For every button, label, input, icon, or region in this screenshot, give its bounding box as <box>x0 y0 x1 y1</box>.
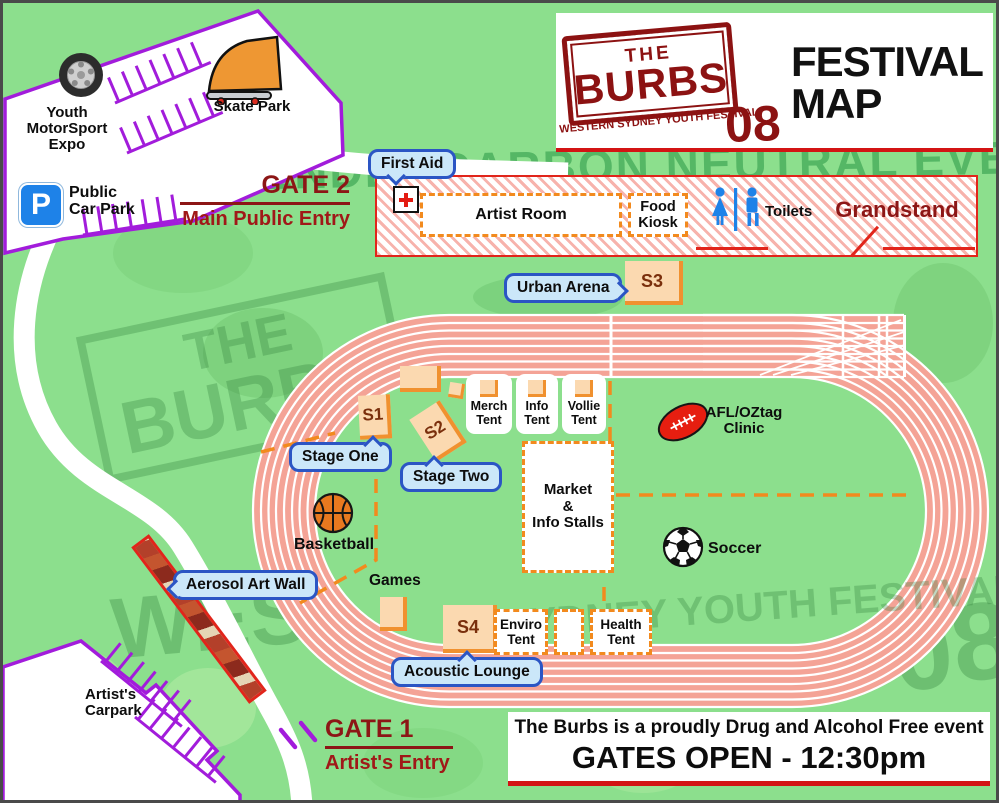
gate2-subtitle: Main Public Entry <box>180 208 350 231</box>
vollie-tent-label: Vollie Tent <box>562 400 606 427</box>
market-line1: Market <box>544 482 592 499</box>
expo-label: Youth MotorSport Expo <box>11 105 123 154</box>
artist-room-label: Artist Room <box>475 206 567 224</box>
stage-s3-label: S3 <box>641 271 663 292</box>
toilets-label: Toilets <box>765 204 812 220</box>
first-aid-cross-icon <box>398 192 414 208</box>
basketball-icon <box>312 492 354 534</box>
stage-two-label: Stage Two <box>413 468 489 485</box>
first-aid-callout: First Aid <box>368 149 456 179</box>
page-title-line2: MAP <box>791 83 983 125</box>
stage-s1-box: S1 <box>358 394 392 440</box>
food-kiosk-box: Food Kiosk <box>628 193 688 237</box>
market-line3: Info Stalls <box>532 515 604 532</box>
gate2-rule <box>180 202 350 205</box>
market-line2: & <box>563 499 574 516</box>
festival-map: A FRIENDLY CARBON NEUTRAL EVENT THE BURB… <box>0 0 999 803</box>
infield-structure-box <box>400 366 441 392</box>
gate2-title: GATE 2 <box>180 171 350 200</box>
footer-panel: The Burbs is a proudly Drug and Alcohol … <box>508 712 990 786</box>
games-label: Games <box>369 573 421 590</box>
gate1-title: GATE 1 <box>325 715 453 744</box>
tire-icon <box>57 51 105 99</box>
enviro-tent-label: Enviro Tent <box>497 617 545 647</box>
gate1-subtitle: Artist's Entry <box>325 752 453 775</box>
parking-sign: P <box>19 183 63 227</box>
info-tent-label: Info Tent <box>516 400 558 427</box>
health-tent-label: Health Tent <box>593 617 649 647</box>
public-car-park-label: Public Car Park <box>69 184 141 219</box>
footer-gates-open: GATES OPEN - 12:30pm <box>572 740 926 776</box>
grandstand-label: Grandstand <box>831 198 963 222</box>
stage-s4-label: S4 <box>457 617 479 638</box>
reserved-tent-box <box>554 609 584 655</box>
artist-carpark-label: Artist's Carpark <box>85 687 159 719</box>
footer-notice: The Burbs is a proudly Drug and Alcohol … <box>514 717 983 739</box>
grandstand-stair-line <box>696 247 768 250</box>
tent-icon <box>575 380 593 397</box>
food-kiosk-label: Food Kiosk <box>631 199 685 231</box>
first-aid-station <box>393 186 419 213</box>
games-box <box>380 597 407 631</box>
stage-s1-label: S1 <box>362 405 384 426</box>
gate1-rule <box>325 746 453 749</box>
soccer-ball-icon <box>662 526 704 568</box>
first-aid-label: First Aid <box>381 155 443 172</box>
merch-tent-label: Merch Tent <box>466 400 512 427</box>
urban-arena-callout: Urban Arena <box>504 273 622 303</box>
gate2-block: GATE 2 Main Public Entry <box>180 171 350 231</box>
enviro-tent-box: Enviro Tent <box>494 609 548 655</box>
aerosol-art-wall-label: Aerosol Art Wall <box>186 576 305 593</box>
artist-room-box: Artist Room <box>420 193 622 237</box>
stage-s4-box: S4 <box>443 605 497 653</box>
skate-ramp-icon <box>203 35 291 105</box>
health-tent-box: Health Tent <box>590 609 652 655</box>
toilets-icon <box>709 186 765 233</box>
gate1-block: GATE 1 Artist's Entry <box>325 715 453 775</box>
stage-s2-label: S2 <box>421 416 449 444</box>
artist-carpark-polygon <box>3 641 240 803</box>
page-title-line1: FESTIVAL <box>791 41 983 83</box>
burbs-logo-word: BURBS <box>572 57 729 110</box>
market-info-stalls-box: Market & Info Stalls <box>522 441 614 573</box>
afl-clinic-label: AFL/OZtag Clinic <box>704 405 784 437</box>
acoustic-lounge-callout: Acoustic Lounge <box>391 657 543 687</box>
stage-one-callout: Stage One <box>289 442 392 472</box>
grandstand-stair-line <box>883 247 975 250</box>
stage-two-callout: Stage Two <box>400 462 502 492</box>
aerosol-art-wall-callout: Aerosol Art Wall <box>173 570 318 600</box>
burbs-logo-year: 08 <box>724 94 782 154</box>
basketball-label: Basketball <box>290 536 378 553</box>
urban-arena-label: Urban Arena <box>517 279 609 296</box>
stage-s3-box: S3 <box>625 261 683 305</box>
infield-structure-small <box>448 382 465 399</box>
soccer-label: Soccer <box>708 540 761 557</box>
acoustic-lounge-label: Acoustic Lounge <box>404 663 530 680</box>
tent-icon <box>480 380 498 397</box>
page-title: FESTIVAL MAP <box>791 41 983 125</box>
vollie-tent-card: Vollie Tent <box>562 374 606 434</box>
stage-one-label: Stage One <box>302 448 379 465</box>
merch-tent-card: Merch Tent <box>466 374 512 434</box>
info-tent-card: Info Tent <box>516 374 558 434</box>
skate-park-label: Skate Park <box>207 99 297 115</box>
tent-icon <box>528 380 546 397</box>
